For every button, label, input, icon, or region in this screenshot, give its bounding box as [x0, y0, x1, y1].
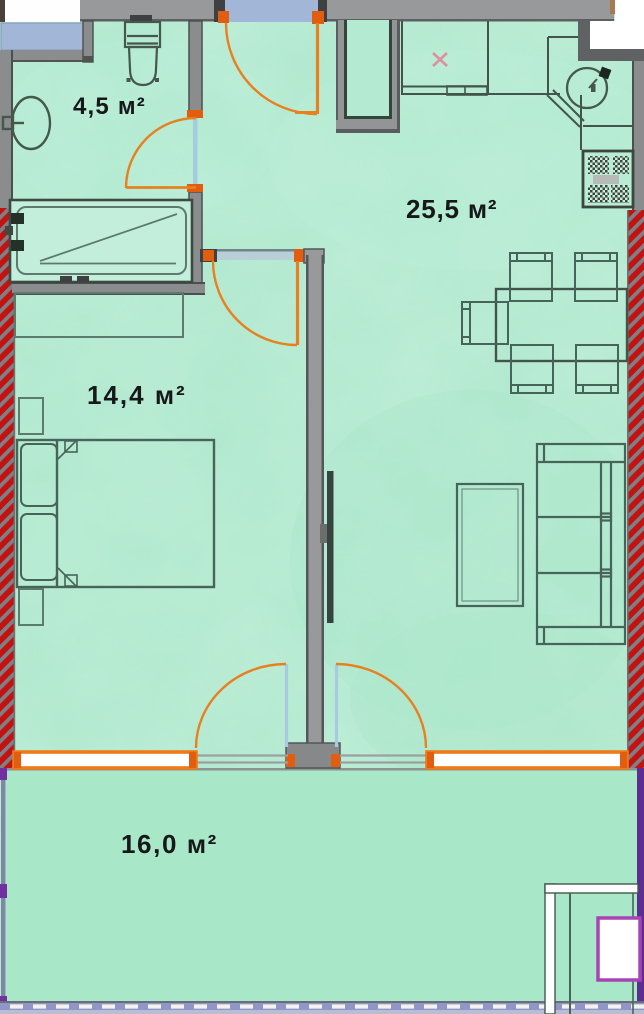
svg-text:16,0 м²: 16,0 м² [121, 829, 218, 859]
svg-text:4,5 м²: 4,5 м² [73, 93, 146, 120]
svg-text:14,4 м²: 14,4 м² [87, 380, 187, 410]
svg-text:25,5 м²: 25,5 м² [406, 194, 497, 224]
